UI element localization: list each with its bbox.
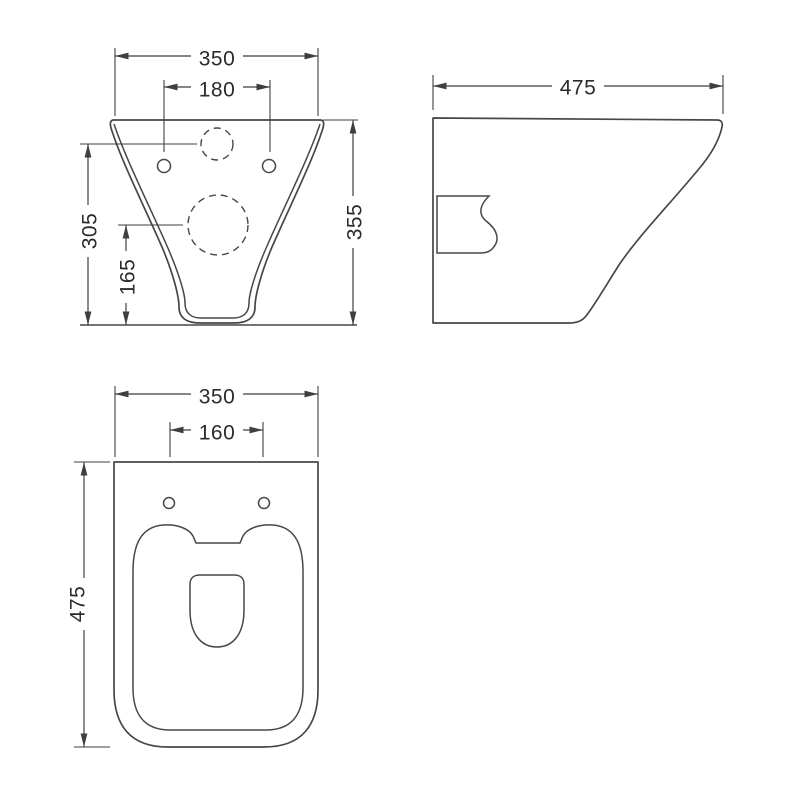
dimension-side-overall-depth: 475 bbox=[560, 77, 597, 100]
front-body-inner-outline bbox=[114, 124, 320, 318]
seat-hole-left bbox=[164, 498, 175, 509]
dimension-front-inlet-centre-height: 305 bbox=[79, 213, 102, 250]
plan-bowl-rim-outline bbox=[133, 525, 303, 730]
waste-outlet-circle bbox=[188, 195, 248, 255]
side-outlet-cutout bbox=[437, 196, 497, 253]
front-view: 350 180 305 165 355 bbox=[79, 48, 367, 326]
front-body-outer-outline bbox=[110, 120, 323, 323]
dimension-front-fixing-hole-spacing: 180 bbox=[199, 79, 236, 102]
drawing-svg: 350 180 305 165 355 bbox=[0, 0, 800, 800]
technical-drawing-canvas: 350 180 305 165 355 bbox=[0, 0, 800, 800]
dimension-plan-overall-depth: 475 bbox=[67, 586, 90, 623]
side-profile-outline bbox=[433, 118, 722, 323]
fixing-hole-left bbox=[158, 160, 171, 173]
plan-sump-outline bbox=[190, 575, 244, 647]
dimension-label-group: 305 bbox=[79, 205, 102, 257]
water-inlet-circle bbox=[201, 128, 233, 160]
dimension-plan-overall-width: 350 bbox=[199, 386, 236, 409]
dimension-plan-seat-hole-spacing: 160 bbox=[199, 422, 236, 445]
side-view: 475 bbox=[433, 75, 723, 323]
seat-hole-right bbox=[259, 498, 270, 509]
dimension-front-overall-width: 350 bbox=[199, 48, 236, 71]
dimension-front-outlet-centre-height: 165 bbox=[117, 259, 140, 296]
dimension-front-overall-height: 355 bbox=[344, 204, 367, 241]
dimension-label-group: 475 bbox=[67, 578, 90, 630]
plan-body-outline bbox=[114, 462, 318, 747]
plan-view: 350 160 475 bbox=[67, 386, 319, 748]
dimension-label-group: 165 bbox=[117, 251, 140, 303]
fixing-hole-right bbox=[263, 160, 276, 173]
dimension-label-group: 355 bbox=[344, 196, 367, 248]
